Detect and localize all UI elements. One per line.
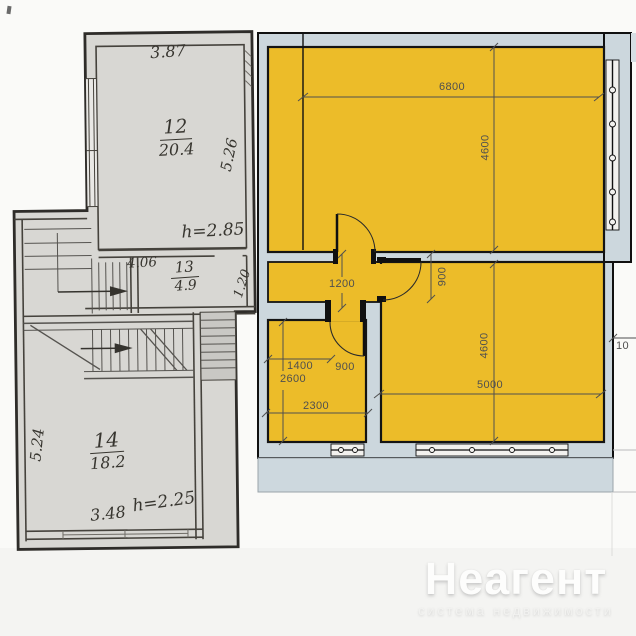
- dim-hallway: 1200: [320, 279, 364, 290]
- door-jamb: [325, 300, 331, 322]
- dim-small-room-width: 1400: [278, 361, 322, 372]
- window-notch: [610, 189, 616, 195]
- window-notch: [470, 448, 475, 453]
- dim-small-room-total: 2300: [294, 401, 338, 412]
- watermark-title: Неагент: [398, 556, 634, 601]
- cad-plan: [258, 33, 636, 556]
- room13-label: 13 4.9: [161, 258, 209, 295]
- window-notch: [610, 121, 616, 127]
- dim-top-room-depth: 4600: [481, 126, 492, 170]
- window-notch: [430, 448, 435, 453]
- window-notch: [610, 87, 616, 93]
- dim-room13-width: 4.06: [120, 255, 165, 271]
- window-bottom-small-room: [331, 444, 364, 456]
- room12-label: 12 20.4: [149, 117, 203, 160]
- door-opening: [378, 264, 384, 296]
- floorplan-image: 3.87 12 20.4 5.26 h=2.85 4.06 13 4.9 1.2…: [0, 0, 636, 636]
- room13-number: 13: [170, 259, 198, 279]
- ceiling-height-upper: h=2.85: [178, 221, 249, 242]
- dim-top-door: 900: [438, 259, 449, 295]
- dim-small-room-depth: 2600: [271, 374, 315, 385]
- watermark-subtitle: система недвижимости: [398, 604, 634, 618]
- window-notch: [353, 448, 358, 453]
- dim-edge-partial: 10: [616, 341, 636, 352]
- scanned-plan: [12, 32, 258, 550]
- window-notch: [610, 219, 616, 225]
- room14-number: 14: [89, 429, 124, 454]
- window-notch: [550, 448, 555, 453]
- scan-paper: [12, 32, 258, 550]
- window-notch: [339, 448, 344, 453]
- window-top-room: [606, 60, 619, 230]
- door-jamb: [377, 296, 386, 302]
- dim-bottom-room-width: 5000: [468, 380, 512, 391]
- room-bottom-large: [381, 262, 604, 442]
- scan-artifact-speck: [6, 6, 11, 14]
- room12-number: 12: [159, 117, 192, 141]
- window-notch: [610, 155, 616, 161]
- door-opening: [331, 301, 365, 321]
- cad-lower-terrace: [258, 458, 613, 492]
- floorplan-drawing: [0, 0, 636, 636]
- cad-wall-bleed: [631, 33, 636, 62]
- staircase-winder-column: [200, 312, 236, 380]
- dim-small-door: 900: [323, 362, 367, 373]
- room-top-large: [268, 47, 604, 252]
- room14-area: 18.2: [82, 453, 133, 473]
- room12-window: [85, 78, 98, 206]
- door-opening: [338, 249, 371, 264]
- room12-area: 20.4: [150, 141, 203, 160]
- dim-bottom-room-depth: 4600: [480, 324, 491, 368]
- window-bottom-large-room: [416, 444, 568, 456]
- door-leaf: [383, 258, 421, 262]
- window-notch: [510, 448, 515, 453]
- watermark: Неагент система недвижимости: [398, 556, 634, 618]
- dim-top-room-width: 6800: [430, 82, 474, 93]
- room14-label: 14 18.2: [81, 428, 134, 473]
- door-jamb: [360, 300, 366, 322]
